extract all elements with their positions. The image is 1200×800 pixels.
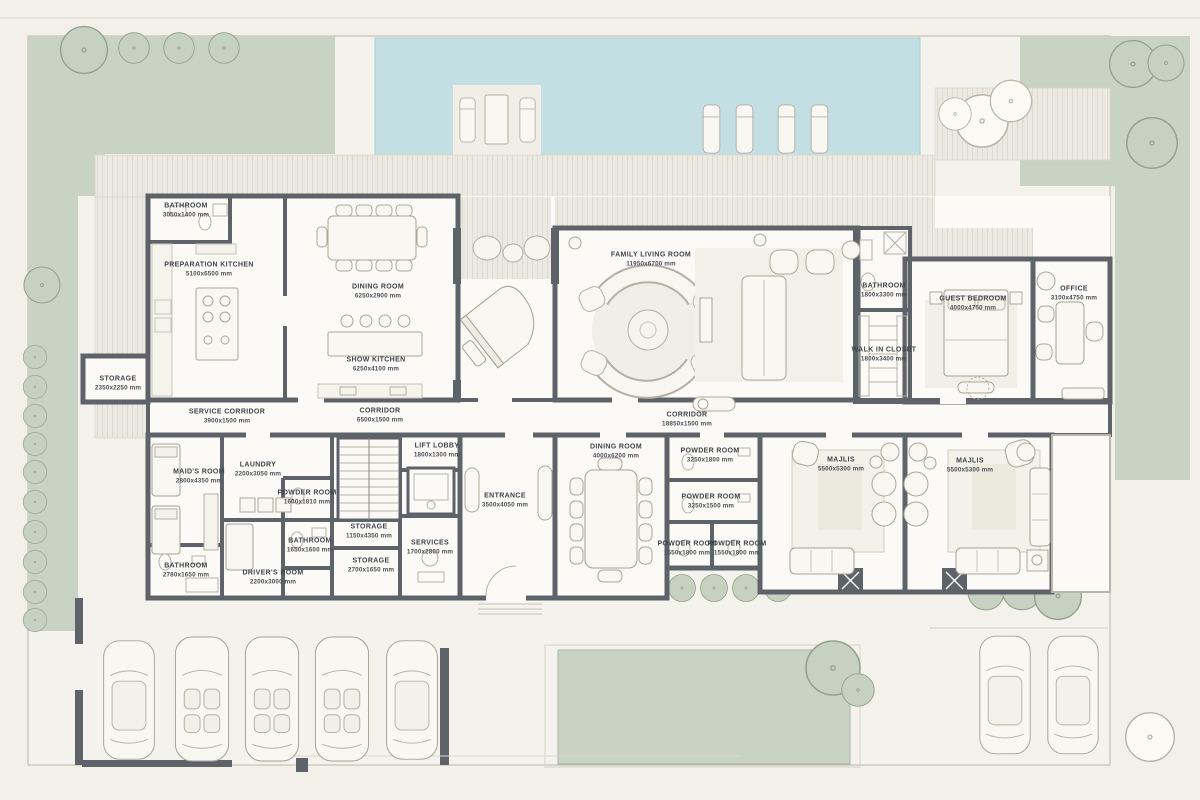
beanbag-icon bbox=[473, 236, 501, 260]
sun-lounger-icon bbox=[811, 105, 828, 153]
car-icon bbox=[1048, 636, 1098, 754]
car-icon bbox=[245, 637, 298, 761]
corridor-bench bbox=[693, 397, 735, 411]
beanbag-icon bbox=[503, 244, 523, 262]
sun-lounger-icon bbox=[460, 98, 475, 142]
car-icon bbox=[980, 636, 1030, 754]
floor-plan: BATHROOM3050x1400 mm PREPARATION KITCHEN… bbox=[0, 0, 1200, 800]
lift bbox=[408, 468, 454, 514]
guest-bedroom-furniture bbox=[925, 290, 1022, 399]
tree-icon bbox=[990, 80, 1031, 121]
car-icon bbox=[387, 641, 438, 759]
sun-lounger-icon bbox=[736, 105, 753, 153]
beanbag-icon bbox=[524, 236, 550, 260]
tree-icon bbox=[1126, 713, 1175, 762]
tree-icon bbox=[939, 98, 971, 130]
swimming-pool bbox=[375, 38, 920, 158]
sun-lounger-icon bbox=[778, 105, 795, 153]
staircase bbox=[338, 438, 400, 520]
car-icon bbox=[175, 637, 228, 761]
car-icon bbox=[104, 641, 155, 759]
car-icon bbox=[315, 637, 368, 761]
sun-lounger-icon bbox=[520, 98, 535, 142]
floor-plan-drawing bbox=[0, 0, 1200, 800]
sun-lounger-icon bbox=[703, 105, 720, 153]
